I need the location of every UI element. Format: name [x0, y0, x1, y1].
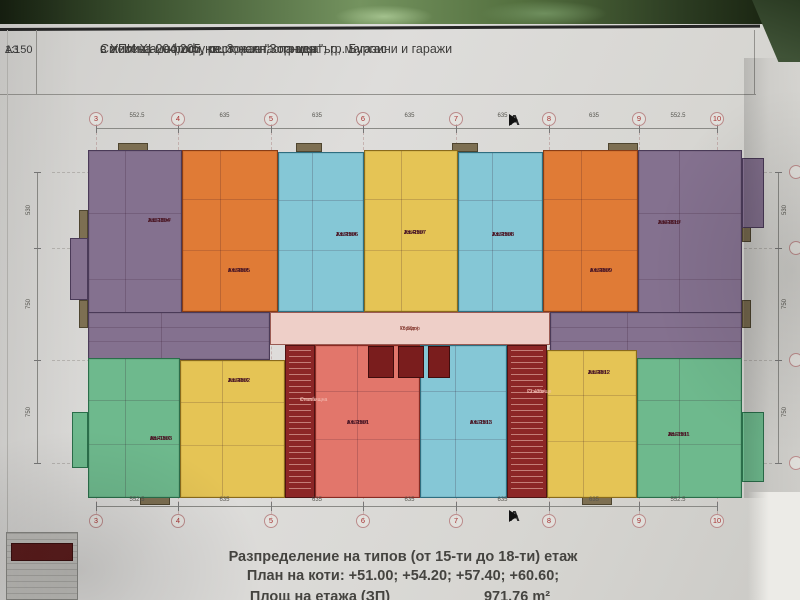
side-grid-tick	[34, 360, 41, 361]
grid-column-bubble: 5	[264, 514, 278, 528]
label-line: 67.18m²	[347, 420, 367, 426]
elevator-1	[368, 346, 394, 378]
span-dimension: 635	[404, 113, 414, 119]
footer-floor-range: Разпределение на типов (от 15-ти до 18-т…	[103, 549, 703, 565]
apartment-1504-lower-rooms	[88, 312, 270, 360]
elevator-3	[428, 346, 450, 378]
left-frame-line	[7, 30, 8, 596]
grid-column-bubble: 8	[542, 514, 556, 528]
label-line: 22.42m²	[527, 390, 545, 396]
balcony	[70, 238, 88, 300]
grid-column-bubble: 4	[171, 514, 185, 528]
grid-tick	[717, 502, 718, 511]
balcony	[79, 300, 88, 328]
title-line-3: в УПИ XI-204,205, кв. 3, ж.к. "Зорница",…	[100, 41, 387, 57]
dimension-rail-line	[96, 506, 717, 507]
label-line: 70.04m²	[228, 378, 248, 384]
span-dimension: 552.5	[670, 497, 685, 503]
sheet-scale: 1:150	[5, 44, 33, 57]
label-line: клетка	[300, 398, 315, 404]
span-dimension: 635	[589, 497, 599, 503]
balcony	[296, 143, 322, 152]
grid-column-bubble: 7	[449, 112, 463, 126]
grid-tick	[178, 502, 179, 511]
label-line: 67.94m²	[590, 268, 610, 274]
label-line: 67.94m²	[228, 268, 248, 274]
span-dimension: 635	[497, 113, 507, 119]
grid-column-bubble: 9	[632, 514, 646, 528]
grid-tick	[271, 502, 272, 511]
label-line: 70.04m²	[588, 370, 608, 376]
apartment-1509	[543, 150, 638, 312]
grid-column-bubble: 3	[89, 112, 103, 126]
side-dimension: 750	[26, 406, 32, 416]
side-dimension: 530	[26, 205, 32, 215]
span-dimension: 635	[312, 113, 322, 119]
side-grid-tick	[34, 248, 41, 249]
span-dimension: 552.5	[670, 113, 685, 119]
label-line: 70.03m²	[668, 432, 688, 438]
span-dimension: 635	[219, 497, 229, 503]
photographed-floor-plan-sheet: Ап. 1504Ап. 1604Ап. 1704Ап. 18042 BR103.…	[0, 0, 800, 600]
side-dimension: 750	[26, 299, 32, 309]
floor-plan: Ап. 1504Ап. 1604Ап. 1704Ап. 18042 BR103.…	[0, 0, 800, 600]
span-dimension: 552.5	[129, 497, 144, 503]
grid-column-bubble: 9	[632, 112, 646, 126]
grid-tick	[456, 502, 457, 511]
label-line: 103.28m²	[148, 218, 171, 224]
grid-column-bubble: 8	[542, 112, 556, 126]
span-dimension: 635	[404, 497, 414, 503]
label-line: 73.93m²	[492, 232, 512, 238]
grid-column-bubble: 10	[710, 112, 724, 126]
title-block-divider-line	[36, 30, 37, 94]
grid-column-bubble: 10	[710, 514, 724, 528]
grid-column-bubble: 5	[264, 112, 278, 126]
span-dimension: 635	[312, 497, 322, 503]
grid-tick	[96, 502, 97, 511]
paper-corner-highlight	[748, 492, 800, 600]
label-line: 73.93m²	[336, 232, 356, 238]
span-dimension: 635	[589, 113, 599, 119]
span-dimension: 635	[497, 497, 507, 503]
apartment-1511	[637, 358, 742, 498]
apartment-1505	[182, 150, 278, 312]
title-band-separator-line	[0, 94, 756, 95]
label-line: 104.49m²	[658, 220, 681, 226]
footer-area-label: Площ на етажа (ЗП)	[235, 589, 405, 600]
dimension-rail-line	[96, 128, 717, 129]
stairwell-left	[285, 345, 315, 498]
apartment-1503	[88, 358, 180, 498]
label-line: 69.49m²	[150, 436, 170, 442]
grid-column-bubble: 7	[449, 514, 463, 528]
span-dimension: 635	[219, 113, 229, 119]
section-marker-arrow-icon	[509, 510, 518, 522]
paper-edge-shadow	[744, 58, 800, 498]
grid-column-bubble: 6	[356, 112, 370, 126]
footer-levels: План на коти: +51.00; +54.20; +57.40; +6…	[103, 568, 703, 584]
grid-tick	[639, 502, 640, 511]
side-rail-line	[37, 172, 38, 463]
label-line: 67.18m²	[470, 420, 490, 426]
elevation-thumbnail-drawing	[6, 532, 78, 600]
elevator-2	[398, 346, 424, 378]
label-line: 76.81m²	[400, 327, 418, 333]
label-line: 75.48m²	[404, 230, 424, 236]
grid-column-bubble: 6	[356, 514, 370, 528]
grid-tick	[549, 502, 550, 511]
footer-area-value: 971.76 m²	[477, 589, 557, 600]
side-grid-tick	[34, 463, 41, 464]
grid-column-bubble: 3	[89, 514, 103, 528]
stairwell-right	[507, 345, 547, 498]
side-grid-tick	[34, 172, 41, 173]
grid-tick	[363, 502, 364, 511]
grid-column-bubble: 4	[171, 112, 185, 126]
elevation-red-band	[11, 543, 73, 561]
balcony	[72, 412, 88, 468]
span-dimension: 552.5	[129, 113, 144, 119]
section-marker-arrow-icon	[509, 114, 518, 126]
